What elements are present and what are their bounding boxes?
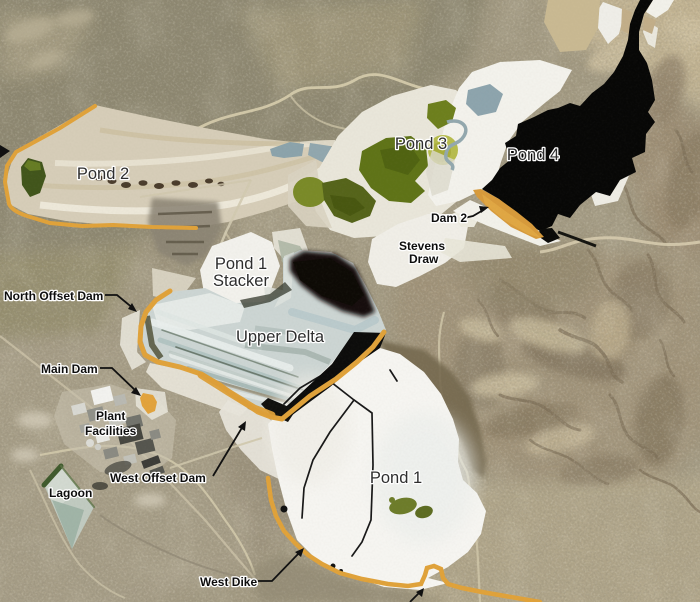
svg-text:Pond 4: Pond 4 xyxy=(507,146,559,164)
svg-text:West Offset Dam: West Offset Dam xyxy=(110,471,206,485)
svg-text:Stevens: Stevens xyxy=(399,239,445,253)
svg-text:North Offset Dam: North Offset Dam xyxy=(4,289,103,303)
svg-text:Facilities: Facilities xyxy=(85,424,137,438)
svg-text:West Dike: West Dike xyxy=(200,575,257,589)
svg-text:Main Dam: Main Dam xyxy=(41,362,98,376)
svg-text:Pond 1: Pond 1 xyxy=(215,255,267,273)
svg-text:Draw: Draw xyxy=(409,252,439,266)
svg-text:Lagoon: Lagoon xyxy=(49,486,92,500)
svg-text:Plant: Plant xyxy=(96,409,125,423)
svg-text:Pond 1: Pond 1 xyxy=(370,469,422,487)
svg-text:Upper Delta: Upper Delta xyxy=(236,328,325,346)
svg-text:Pond 2: Pond 2 xyxy=(77,165,129,183)
svg-text:Dam 2: Dam 2 xyxy=(431,211,467,225)
svg-text:Pond 3: Pond 3 xyxy=(395,135,447,153)
svg-text:Stacker: Stacker xyxy=(213,272,269,290)
